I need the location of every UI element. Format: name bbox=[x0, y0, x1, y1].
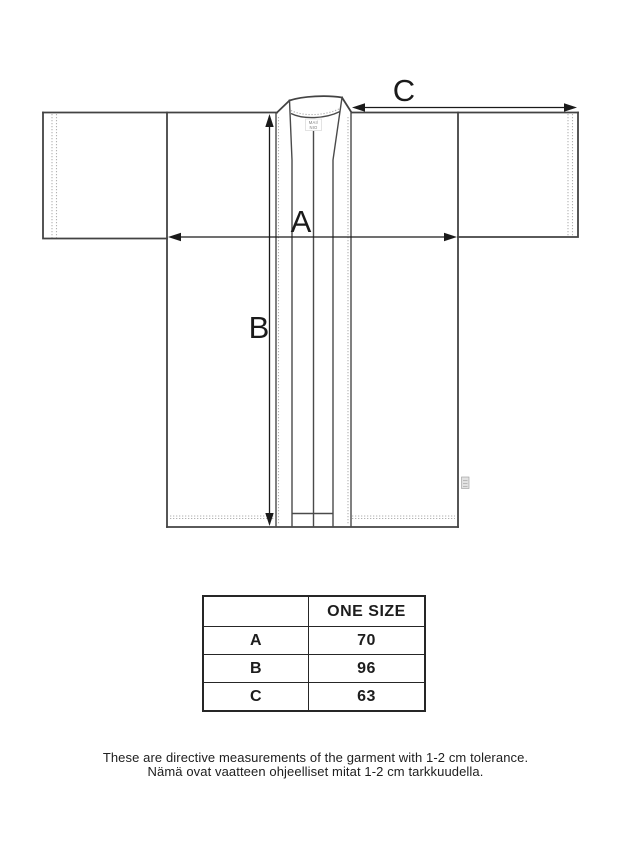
size-table-header-empty-cell bbox=[203, 596, 309, 627]
dim-b-arrowhead-bottom bbox=[265, 513, 273, 526]
size-table-header-row: ONE SIZE bbox=[203, 596, 425, 627]
dimension-arrow-c: C bbox=[352, 73, 577, 112]
right-cuff-stitching bbox=[568, 114, 573, 236]
row-a-label: A bbox=[203, 627, 309, 655]
dim-c-arrowhead-right bbox=[564, 103, 577, 111]
dimension-arrow-b: B bbox=[249, 114, 274, 526]
side-tag-box bbox=[462, 477, 470, 489]
dim-b-arrowhead-top bbox=[265, 114, 273, 127]
dimension-arrow-a: A bbox=[168, 204, 457, 241]
row-c-label: C bbox=[203, 683, 309, 712]
dim-a-label: A bbox=[291, 204, 312, 239]
collar-slope-right bbox=[342, 98, 352, 113]
tolerance-caption-en: These are directive measurements of the … bbox=[0, 751, 631, 765]
dim-c-arrowhead-left bbox=[352, 103, 365, 111]
row-b-label: B bbox=[203, 655, 309, 683]
table-row: A 70 bbox=[203, 627, 425, 655]
right-sleeve-outline bbox=[458, 113, 578, 238]
row-a-value: 70 bbox=[309, 627, 426, 655]
hem-stitching-right bbox=[352, 516, 455, 519]
stitching-details bbox=[52, 114, 573, 525]
neck-tag-text-line2: NIO bbox=[309, 125, 318, 130]
dim-c-label: C bbox=[393, 73, 415, 108]
collar-slope-left bbox=[277, 101, 290, 113]
dim-a-arrowhead-left bbox=[168, 233, 181, 241]
size-table-header-one-size: ONE SIZE bbox=[309, 596, 426, 627]
row-b-value: 96 bbox=[309, 655, 426, 683]
left-cuff-stitching bbox=[52, 114, 57, 238]
back-neck-stitching bbox=[291, 109, 340, 115]
size-table: ONE SIZE A 70 B 96 C 63 bbox=[202, 595, 426, 712]
collar-band bbox=[276, 96, 351, 527]
row-c-value: 63 bbox=[309, 683, 426, 712]
dim-a-arrowhead-right bbox=[444, 233, 457, 241]
tolerance-caption: These are directive measurements of the … bbox=[0, 751, 631, 779]
left-sleeve-outline bbox=[43, 113, 167, 239]
garment-measurement-diagram: MAI/ NIO A B C bbox=[0, 0, 631, 841]
collar-top-edge bbox=[290, 96, 343, 100]
size-guide-page: MAI/ NIO A B C bbox=[0, 0, 631, 841]
hem-stitching-left bbox=[170, 516, 274, 519]
garment-outline bbox=[43, 98, 578, 528]
tolerance-caption-fi: Nämä ovat vaatteen ohjeelliset mitat 1-2… bbox=[0, 765, 631, 779]
band-edge-left bbox=[290, 101, 293, 528]
dim-b-label: B bbox=[249, 310, 270, 345]
neck-tag: MAI/ NIO bbox=[306, 119, 322, 131]
band-edge-right bbox=[333, 98, 342, 528]
table-row: B 96 bbox=[203, 655, 425, 683]
table-row: C 63 bbox=[203, 683, 425, 712]
side-seam-tag bbox=[462, 477, 470, 489]
